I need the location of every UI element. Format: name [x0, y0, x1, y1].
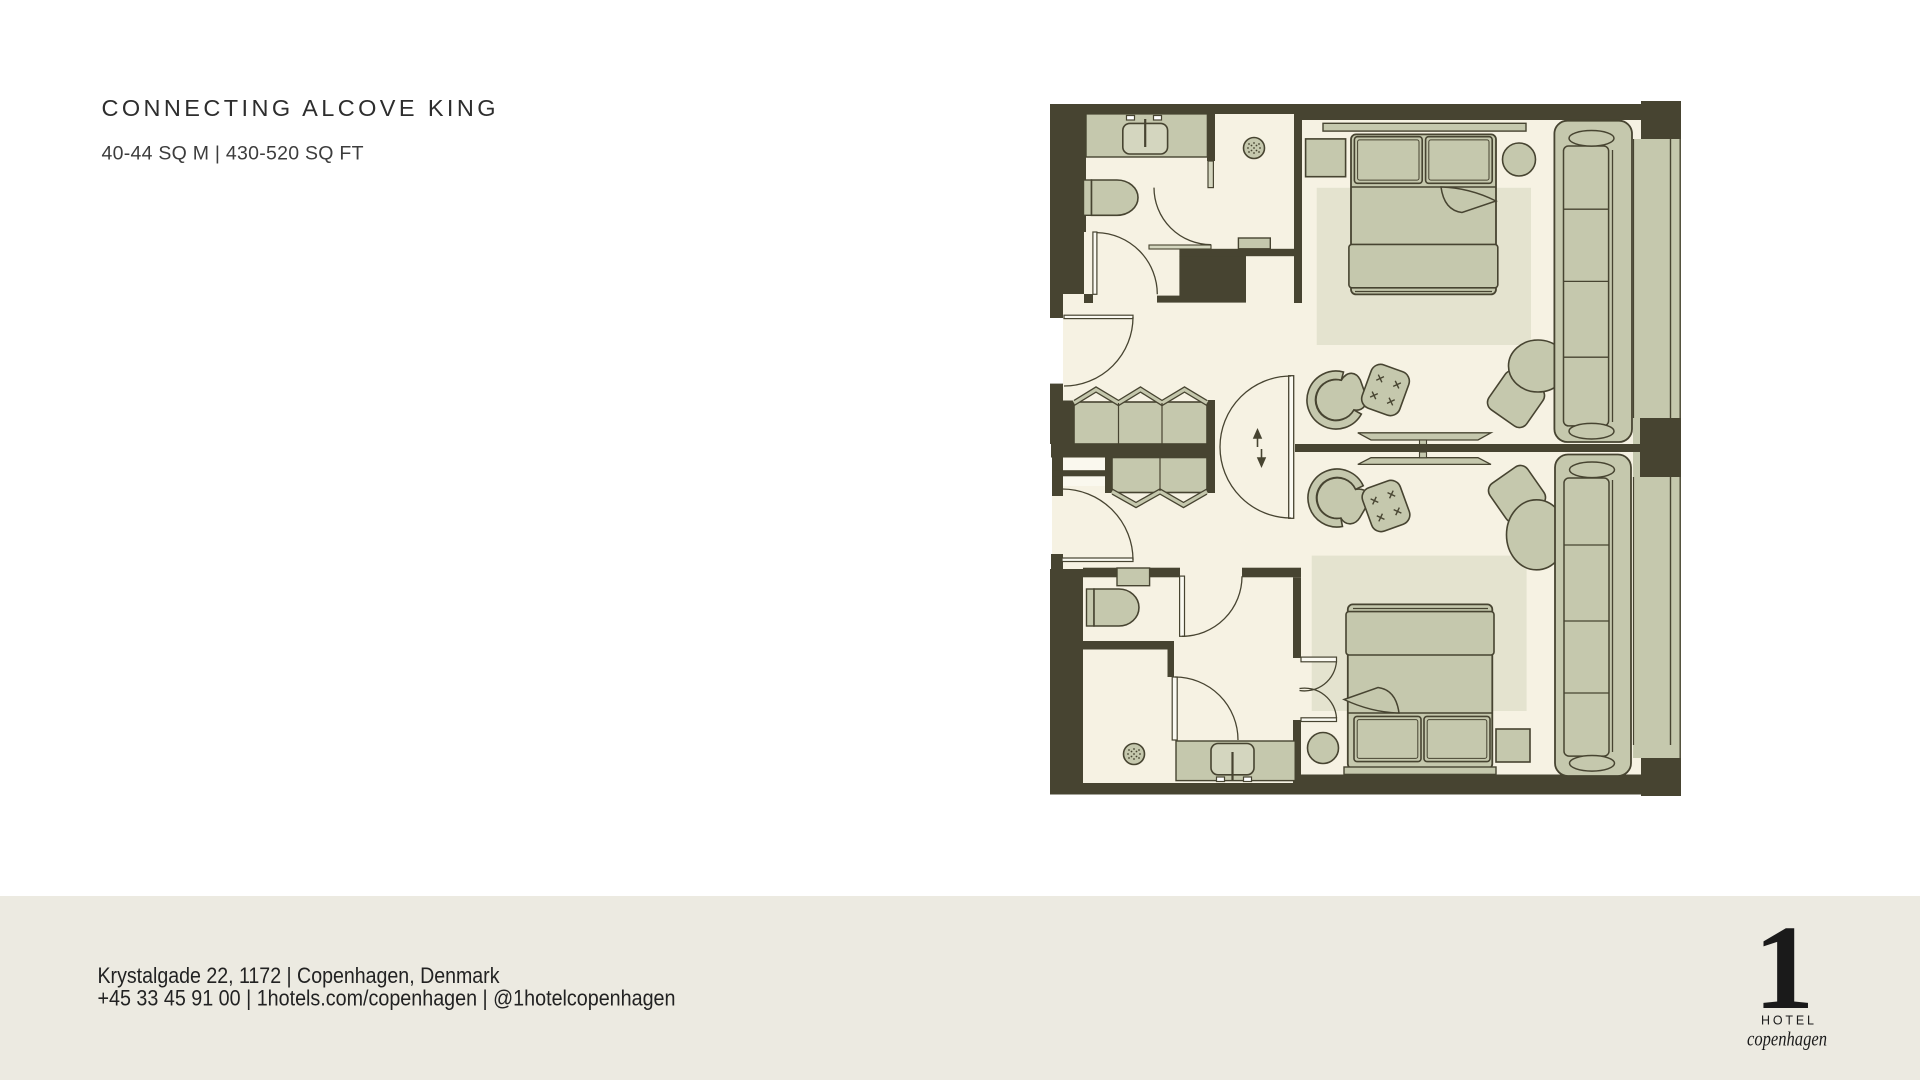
svg-text:copenhagen: copenhagen	[1747, 1029, 1827, 1051]
svg-text:40-44 SQ M | 430-520 SQ FT: 40-44 SQ M | 430-520 SQ FT	[102, 143, 364, 165]
svg-text:HOTEL: HOTEL	[1761, 1013, 1814, 1027]
svg-text:Krystalgade 22, 1172 | Copenha: Krystalgade 22, 1172 | Copenhagen, Denma…	[98, 963, 501, 988]
svg-text:+45 33 45 91 00 | 1hotels.com/: +45 33 45 91 00 | 1hotels.com/copenhagen…	[98, 985, 676, 1010]
